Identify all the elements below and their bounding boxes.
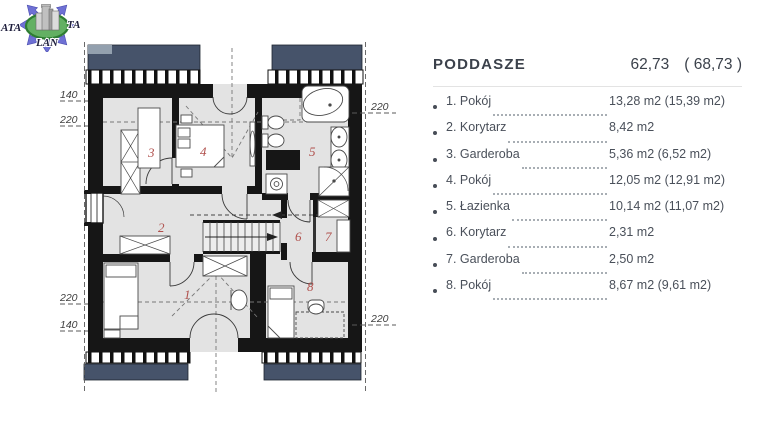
list-item: 4. Pokój 12,05 m2 (12,91 m2) (433, 173, 742, 199)
bullet-icon (433, 237, 437, 241)
floor-area-gross: ( 68,73 ) (684, 56, 742, 74)
list-item: 3. Garderoba 5,36 m2 (6,52 m2) (433, 147, 742, 173)
room-list: 1. Pokój 13,28 m2 (15,39 m2) 2. Korytarz… (433, 94, 742, 304)
floor-areas: 62,73 ( 68,73 ) (630, 56, 742, 74)
dim-left-top-220: 220 (59, 114, 78, 126)
dim-left-top-140: 140 (60, 89, 78, 101)
room-area: 8,67 m2 (9,61 m2) (609, 278, 742, 292)
bullet-icon (433, 289, 437, 293)
room-label-4: 4 (200, 144, 207, 159)
room-label-8: 8 (307, 279, 314, 294)
legend-panel: PODDASZE 62,73 ( 68,73 ) 1. Pokój 13,28 … (433, 56, 742, 304)
room-area: 13,28 m2 (15,39 m2) (609, 94, 742, 108)
dot-leader (493, 114, 607, 116)
room-label-5: 5 (309, 144, 316, 159)
room-label-6: 6 (295, 229, 302, 244)
company-logo: ATA TA LAN (0, 0, 100, 52)
dot-leader (493, 193, 607, 195)
floor-plan: 1 2 3 4 5 6 7 8 140 220 220 140 220 220 (0, 0, 420, 438)
bullet-icon (433, 105, 437, 109)
bullet-icon (433, 210, 437, 214)
dot-leader (522, 167, 607, 169)
dim-right-top-220: 220 (370, 101, 389, 113)
divider (433, 86, 742, 87)
room-name: 6. Korytarz (446, 225, 508, 239)
list-item: 8. Pokój 8,67 m2 (9,61 m2) (433, 278, 742, 304)
dim-right-bottom-220: 220 (370, 313, 389, 325)
room-area: 8,42 m2 (609, 120, 742, 134)
legend-header: PODDASZE 62,73 ( 68,73 ) (433, 56, 742, 74)
room-name: 8. Pokój (446, 278, 493, 292)
dot-leader (512, 219, 607, 221)
dot-leader (522, 272, 607, 274)
logo-word-left: ATA (0, 22, 21, 34)
room-area: 12,05 m2 (12,91 m2) (609, 173, 742, 187)
dim-left-bottom-220: 220 (59, 292, 78, 304)
room-name: 4. Pokój (446, 173, 493, 187)
floor-area-net: 62,73 (630, 56, 669, 74)
room-area: 2,50 m2 (609, 252, 742, 266)
list-item: 5. Łazienka 10,14 m2 (11,07 m2) (433, 199, 742, 225)
room-name: 5. Łazienka (446, 199, 512, 213)
list-item: 2. Korytarz 8,42 m2 (433, 120, 742, 146)
room-area: 5,36 m2 (6,52 m2) (609, 147, 742, 161)
room-name: 2. Korytarz (446, 120, 508, 134)
room-name: 7. Garderoba (446, 252, 522, 266)
room-label-2: 2 (158, 220, 165, 235)
logo-word-bottom: LAN (35, 37, 59, 49)
room-label-3: 3 (147, 145, 155, 160)
room-area: 2,31 m2 (609, 225, 742, 239)
page: 1 2 3 4 5 6 7 8 140 220 220 140 220 220 (0, 0, 758, 438)
dim-left-bottom-140: 140 (60, 319, 78, 331)
window (84, 190, 103, 226)
dot-leader (508, 141, 607, 143)
dot-leader (493, 298, 607, 300)
bullet-icon (433, 263, 437, 267)
bullet-icon (433, 131, 437, 135)
bullet-icon (433, 184, 437, 188)
list-item: 6. Korytarz 2,31 m2 (433, 225, 742, 251)
stairs (203, 222, 280, 252)
bullet-icon (433, 158, 437, 162)
room-name: 1. Pokój (446, 94, 493, 108)
dot-leader (508, 246, 607, 248)
list-item: 7. Garderoba 2,50 m2 (433, 252, 742, 278)
logo-word-right: TA (67, 19, 80, 31)
room-label-7: 7 (325, 229, 332, 244)
room-area: 10,14 m2 (11,07 m2) (609, 199, 742, 213)
list-item: 1. Pokój 13,28 m2 (15,39 m2) (433, 94, 742, 120)
logo-buildings-icon (36, 5, 59, 31)
page-title: PODDASZE (433, 56, 526, 73)
room-label-1: 1 (184, 287, 191, 302)
room-name: 3. Garderoba (446, 147, 522, 161)
